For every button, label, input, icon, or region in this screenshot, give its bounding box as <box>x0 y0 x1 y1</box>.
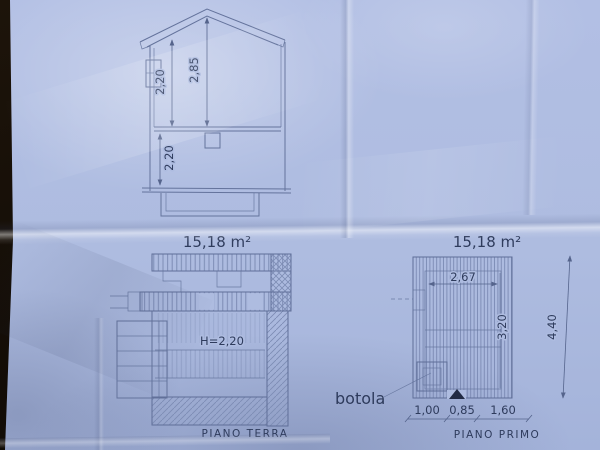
wall-steps <box>163 271 181 292</box>
floor-plan-first: 15,18 m² 2,67 3,20 botola 1,00 <box>335 233 570 441</box>
ground-line <box>142 188 291 189</box>
plan-terra-caption: PIANO TERRA <box>202 428 289 440</box>
trapdoor <box>417 362 447 391</box>
floor-plan-ground: 15,18 m² H=2,20 <box>110 233 291 440</box>
section-drawing: 2,20 2,85 2,20 <box>140 9 291 216</box>
dim-bottom-2: 0,85 <box>449 403 475 417</box>
section-opening <box>205 133 220 148</box>
roof-outline <box>140 9 285 42</box>
interior-hatch <box>155 350 265 378</box>
foundation-outline <box>161 193 259 216</box>
door-opening <box>199 293 214 310</box>
eave-left <box>140 42 150 49</box>
photo-of-floor-plan: 2,20 2,85 2,20 15,18 m² <box>0 0 600 450</box>
dim-lower-height-label: 2,20 <box>162 145 176 171</box>
plan-terra-area-label: 15,18 m² <box>183 233 251 251</box>
plan-primo-area-label: 15,18 m² <box>453 233 521 251</box>
wall-bottom-hatched <box>152 397 267 425</box>
door-opening <box>248 293 263 310</box>
wall-right-hatched <box>267 311 288 426</box>
dim-bottom-1: 1,00 <box>414 403 440 417</box>
room-height-label: H=2,20 <box>200 334 244 348</box>
bottom-dimension-chain: 1,00 0,85 1,60 <box>405 403 532 422</box>
dim-total-height-label: 4,40 <box>545 314 559 340</box>
dim-inner-height-label: 3,20 <box>495 314 509 340</box>
dim-ridge-height-label: 2,85 <box>187 57 201 83</box>
dim-line-total-height <box>563 256 570 398</box>
dim-wall-height-label: 2,20 <box>153 69 167 95</box>
plan-primo-caption: PIANO PRIMO <box>454 429 541 441</box>
trapdoor-label: botola <box>335 389 385 408</box>
dim-width-label: 2,67 <box>450 270 476 284</box>
architectural-drawing: 2,20 2,85 2,20 15,18 m² <box>0 0 600 450</box>
wall-top-hatched <box>152 254 291 271</box>
eave-right <box>276 40 285 47</box>
wall-mid-hatched <box>140 292 291 311</box>
dim-bottom-3: 1,60 <box>490 403 516 417</box>
